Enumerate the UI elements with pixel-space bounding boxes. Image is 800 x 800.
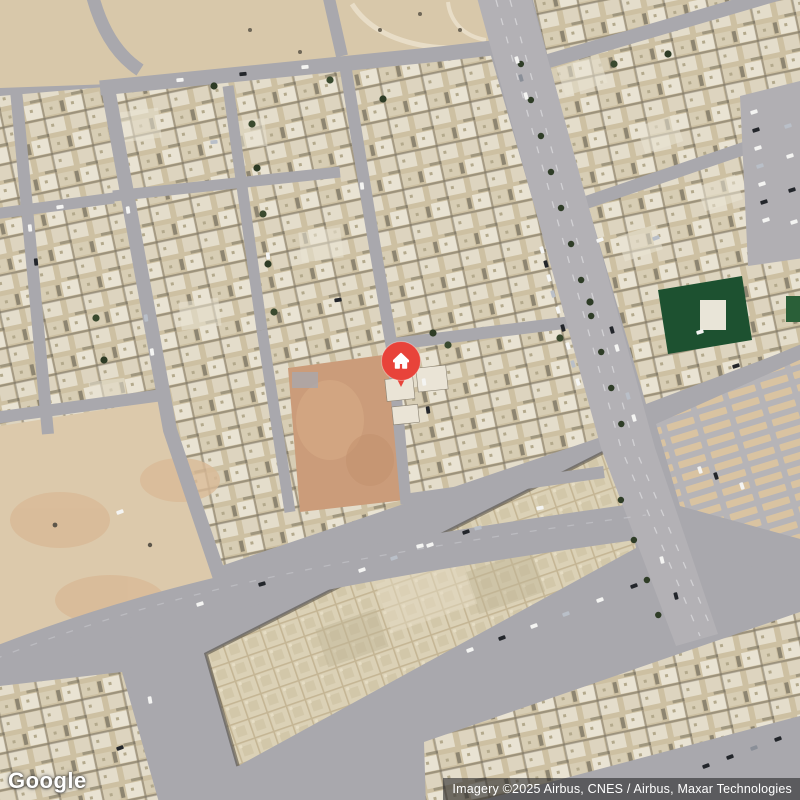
rooftop-structure xyxy=(700,300,726,330)
dirt-gray-patch xyxy=(292,372,318,388)
attribution-bar: Imagery ©2025 Airbus, CNES / Airbus, Max… xyxy=(443,778,800,800)
google-logo[interactable]: Google xyxy=(8,770,87,792)
green-roof-small xyxy=(786,296,800,322)
lot-speck xyxy=(148,543,152,547)
parking-lot-northeast xyxy=(740,80,800,266)
lot-speck xyxy=(53,523,58,528)
satellite-imagery[interactable] xyxy=(0,0,800,800)
map-viewport: Google Imagery ©2025 Airbus, CNES / Airb… xyxy=(0,0,800,800)
dirt-mottle xyxy=(346,434,394,486)
attribution-text: Imagery ©2025 Airbus, CNES / Airbus, Max… xyxy=(452,782,792,796)
